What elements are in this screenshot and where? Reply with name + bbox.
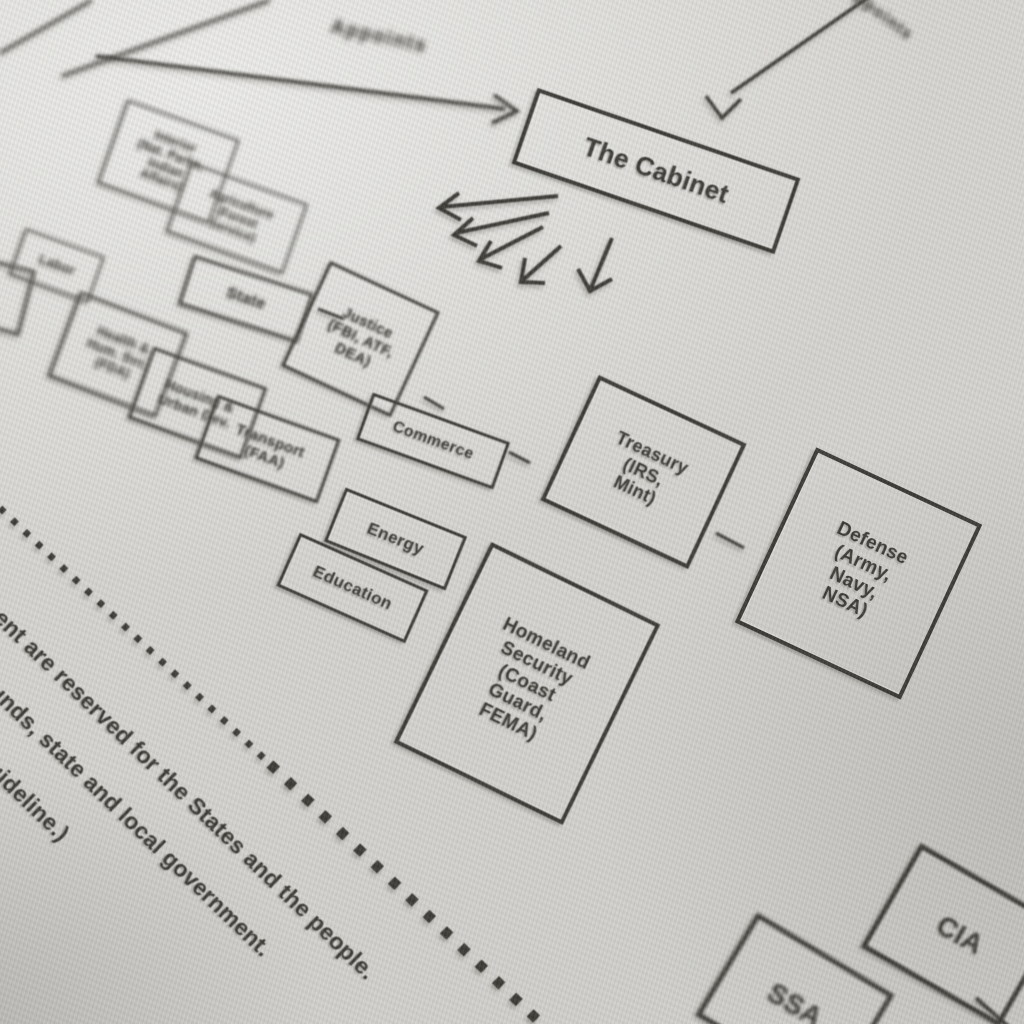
dept-labor-box-line: Labor [37, 252, 77, 279]
dept-state-box-line: State [224, 284, 268, 314]
agency-cia-box-line: CIA [931, 909, 990, 961]
dept-energy-box-line: Energy [364, 519, 426, 559]
dept-education-box-line: Education [310, 562, 395, 614]
appoints-arrow-down [706, 0, 876, 118]
letterpress-org-chart-photo: Appoints Appoints The Cabinet Interior(N… [0, 0, 1024, 1024]
agency-ssa-box-line: SSA [762, 976, 829, 1024]
cabinet-fan-arrows [439, 193, 612, 291]
corner-lines [0, 0, 270, 76]
